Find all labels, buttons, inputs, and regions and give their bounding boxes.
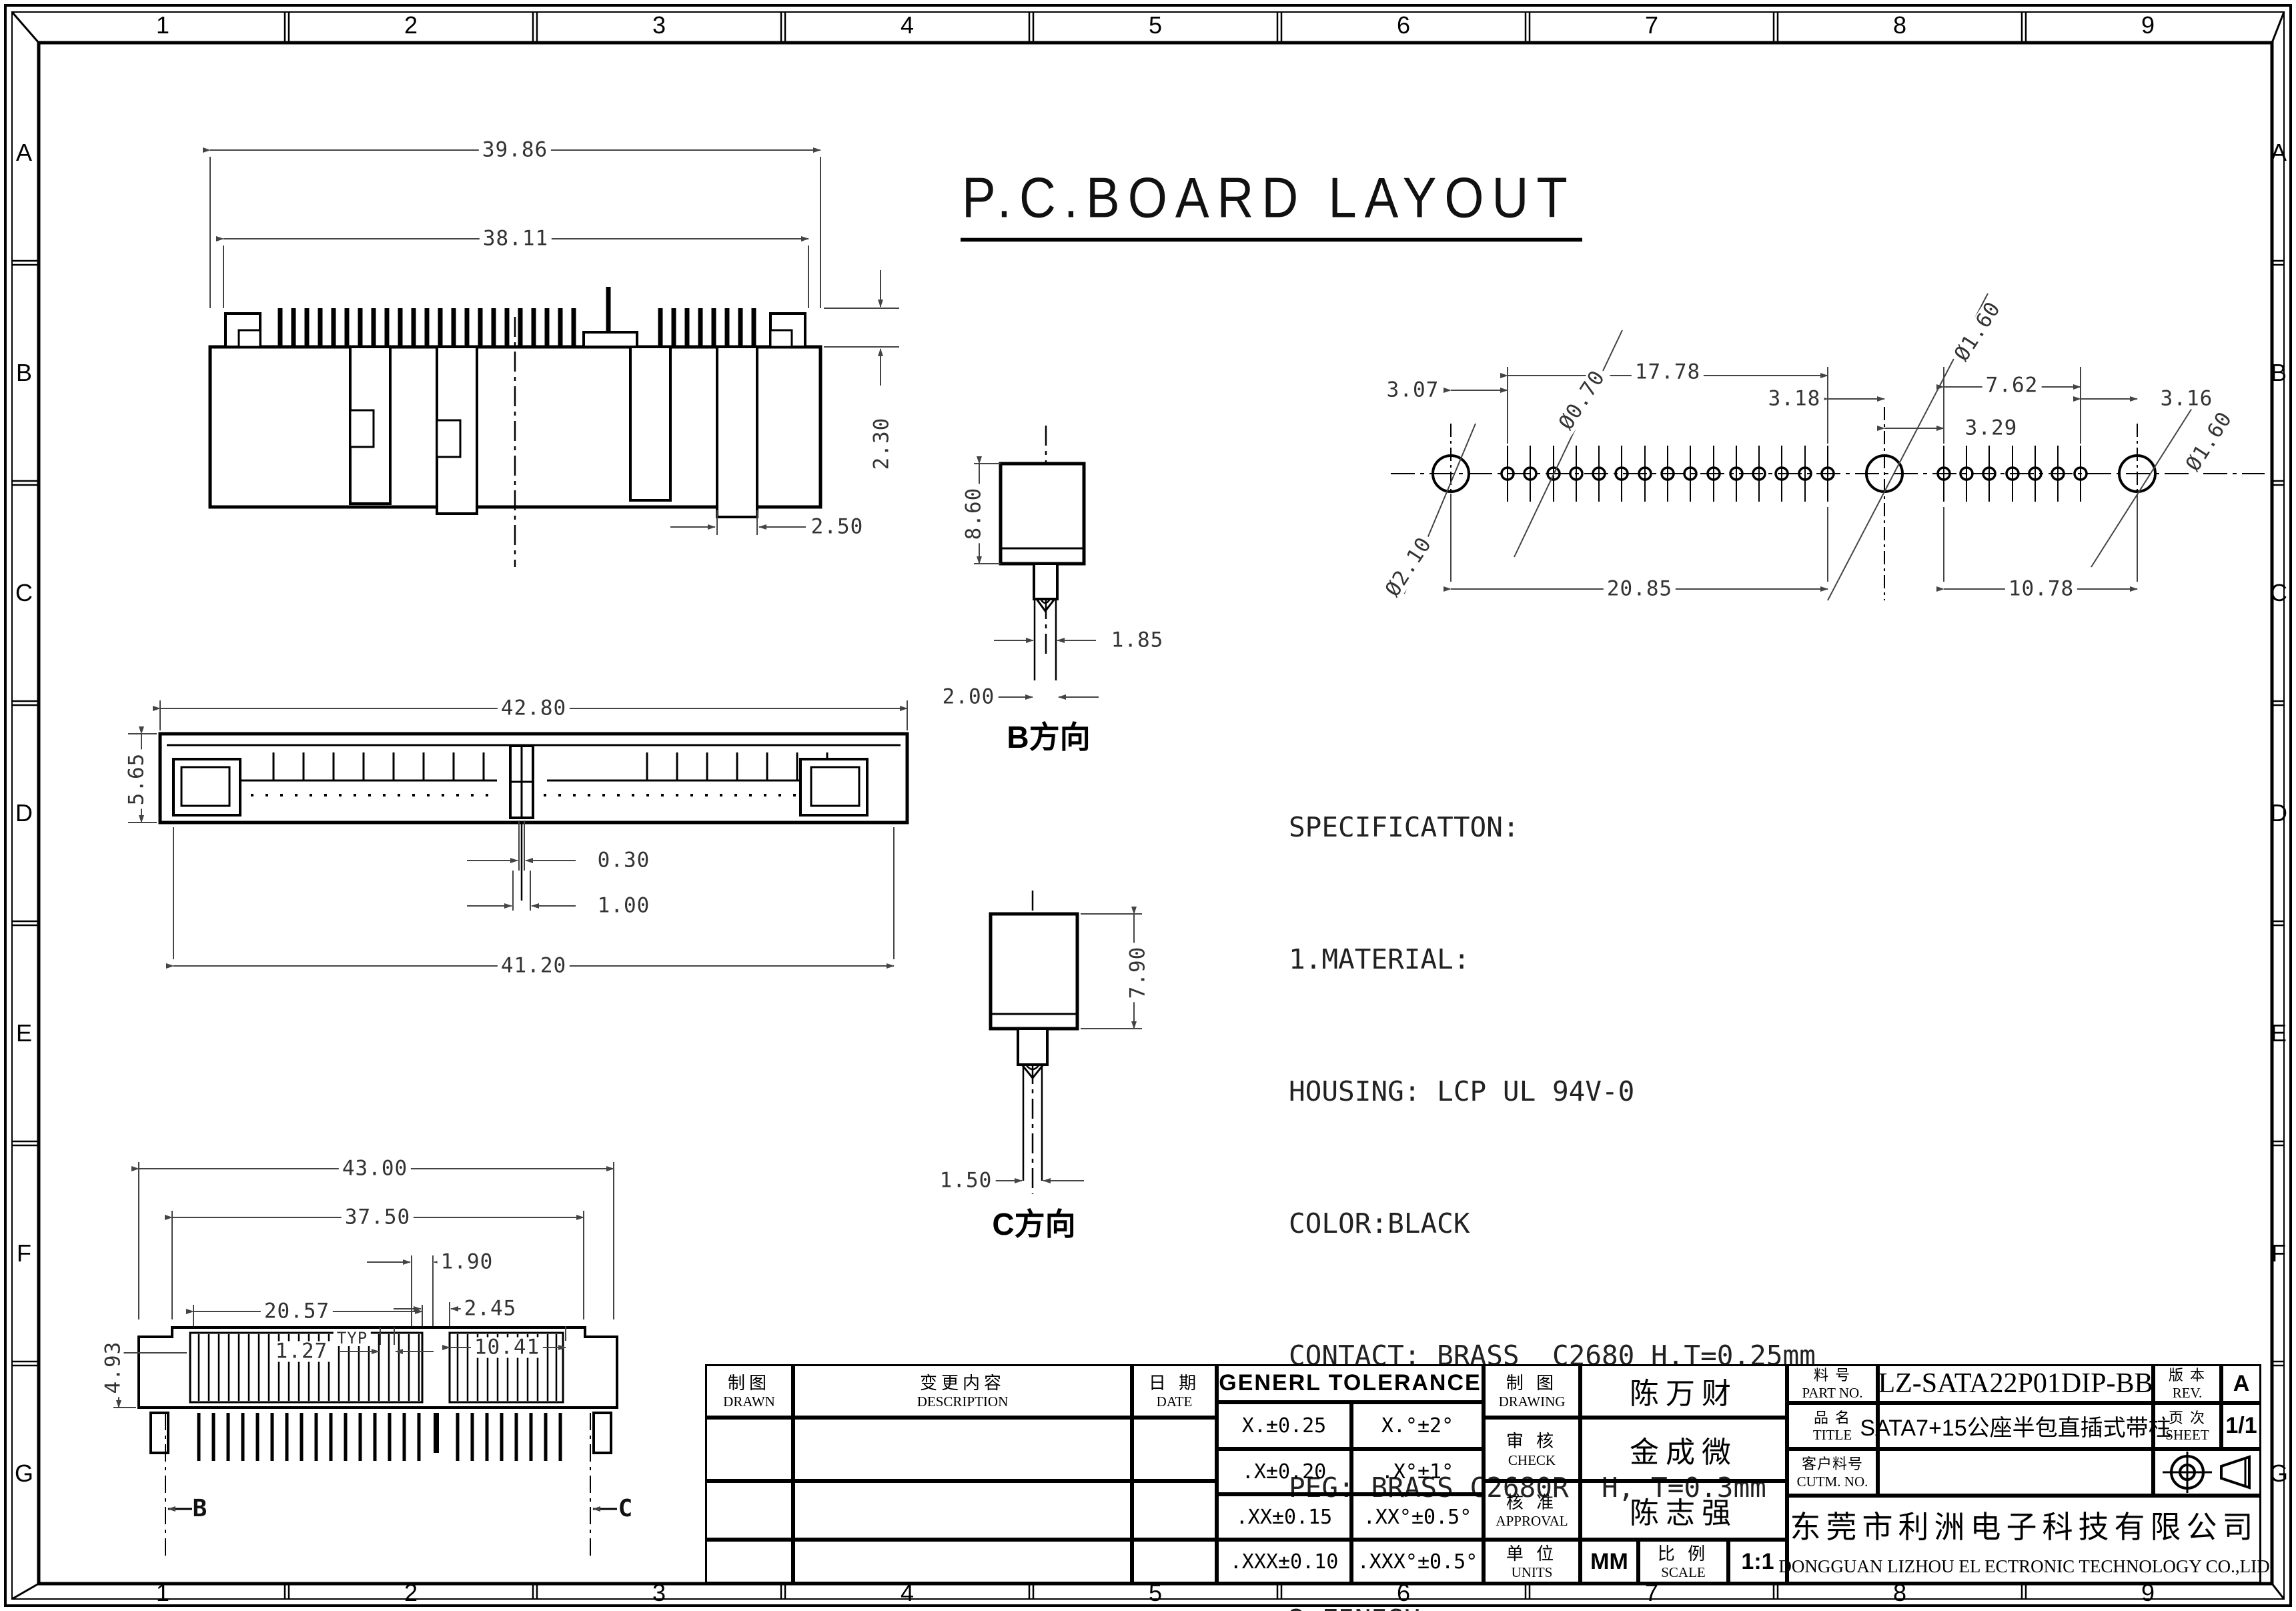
sheet-label-en: SHEET bbox=[2165, 1427, 2209, 1443]
titleblock-empty-cell bbox=[705, 1418, 793, 1481]
titleblock-check-name: 金成微 bbox=[1580, 1418, 1787, 1481]
titleblock-drawing-label: 制 图 DRAWING bbox=[1484, 1364, 1580, 1418]
zone-col-top-8: 8 bbox=[1893, 11, 1906, 39]
dim-viewb-peg-tip: 1.85 bbox=[1108, 630, 1167, 651]
titleblock-partno-value: LZ-SATA22P01DIP-BB bbox=[1878, 1364, 2153, 1403]
view-b-label: B方向 bbox=[1007, 713, 1090, 757]
tolerance-cell: X.°±2° bbox=[1351, 1402, 1484, 1449]
dim-top-pin-height: 2.30 bbox=[872, 414, 893, 474]
tolerance-cell: .XX±0.15 bbox=[1217, 1494, 1351, 1540]
tolerance-cell: .XX°±0.5° bbox=[1351, 1494, 1484, 1540]
b-direction-view-drawing bbox=[921, 420, 1294, 794]
titleblock-empty-cell bbox=[793, 1540, 1132, 1584]
drawing-label-en: DRAWING bbox=[1499, 1394, 1566, 1410]
top-view-drawing bbox=[200, 127, 901, 580]
sheet-value: 1/1 bbox=[2225, 1413, 2257, 1439]
titleblock-company-cell: 东莞市利洲电子科技有限公司 DONGGUAN LIZHOU EL ECTRONI… bbox=[1787, 1496, 2261, 1584]
rev-label-en: REV. bbox=[2173, 1385, 2203, 1401]
units-value: MM bbox=[1590, 1549, 1628, 1575]
titleblock-empty-cell bbox=[793, 1418, 1132, 1481]
dim-viewc-peg-width: 1.50 bbox=[937, 1171, 996, 1191]
tolerance-value: .X±0.20 bbox=[1242, 1460, 1326, 1484]
tolerance-cell: X.±0.25 bbox=[1217, 1402, 1351, 1449]
approval-label-en: APPROVAL bbox=[1496, 1513, 1568, 1529]
zone-col-top-6: 6 bbox=[1397, 11, 1410, 39]
approval-name: 陈志强 bbox=[1630, 1489, 1738, 1532]
zone-row-right-a: A bbox=[2271, 139, 2287, 167]
dim-viewb-peg-width: 2.00 bbox=[939, 687, 999, 708]
partno-label-en: PART NO. bbox=[1802, 1385, 1863, 1401]
titleblock-units-value: MM bbox=[1580, 1540, 1638, 1584]
titleblock-title-value: SATA7+15公座半包直插式带柱 bbox=[1878, 1403, 2153, 1449]
titleblock-units-label: 单 位 UNITS bbox=[1484, 1540, 1580, 1584]
dim-front-height: 5.65 bbox=[127, 750, 147, 809]
zone-row-right-d: D bbox=[2270, 799, 2287, 827]
check-label-en: CHECK bbox=[1508, 1452, 1556, 1468]
tolerance-header-label: GENERL TOLERANCE bbox=[1219, 1370, 1481, 1396]
dim-front-key-depth: 1.00 bbox=[594, 896, 654, 917]
customer-label-en: CUTM. NO. bbox=[1797, 1474, 1868, 1490]
spec-line: HOUSING: LCP UL 94V-0 bbox=[1289, 1069, 2112, 1113]
titleblock-empty-cell bbox=[1132, 1481, 1217, 1540]
view-c-label: C方向 bbox=[992, 1200, 1075, 1244]
tolerance-value: .XXX±0.10 bbox=[1230, 1550, 1339, 1574]
zone-row-left-g: G bbox=[15, 1460, 33, 1488]
titleblock-empty-cell bbox=[1132, 1540, 1217, 1584]
company-name-en: DONGGUAN LIZHOU EL ECTRONIC TECHNOLOGY C… bbox=[1778, 1556, 2269, 1577]
zone-row-left-c: C bbox=[15, 579, 33, 607]
part-number: LZ-SATA22P01DIP-BB bbox=[1878, 1368, 2153, 1400]
zone-col-top-3: 3 bbox=[652, 11, 666, 39]
spec-line: COLOR:BLACK bbox=[1289, 1201, 2112, 1245]
spec-line: 2.FINISH: bbox=[1289, 1598, 2112, 1611]
zone-row-left-a: A bbox=[16, 139, 32, 167]
bottom-view-drawing bbox=[87, 1147, 754, 1588]
check-label-cn: 审 核 bbox=[1506, 1430, 1558, 1452]
titleblock-date-header: 日 期 DATE bbox=[1132, 1364, 1217, 1418]
title-label-cn: 品 名 bbox=[1814, 1409, 1851, 1428]
titleblock-partno-label: 料 号 PART NO. bbox=[1787, 1364, 1878, 1403]
dim-pcb-3-18: 3.18 bbox=[1765, 389, 1824, 410]
date-label-en: DATE bbox=[1157, 1394, 1193, 1410]
description-label-cn: 变更内容 bbox=[920, 1372, 1005, 1394]
tolerance-cell: .X±0.20 bbox=[1217, 1449, 1351, 1494]
titleblock-tolerance-header: GENERL TOLERANCE bbox=[1217, 1364, 1484, 1402]
dim-bottom-20-57: 20.57 bbox=[261, 1301, 333, 1322]
customer-label-cn: 客户料号 bbox=[1802, 1455, 1863, 1474]
dim-bottom-width-outer: 43.00 bbox=[339, 1159, 411, 1179]
titleblock-sheet-value: 1/1 bbox=[2221, 1403, 2261, 1449]
spec-line: 1.MATERIAL: bbox=[1289, 937, 2112, 981]
dim-bottom-2-45: 2.45 bbox=[461, 1299, 520, 1319]
dim-viewb-body-height: 8.60 bbox=[964, 484, 985, 544]
titleblock-drawn-header: 制图 DRAWN bbox=[705, 1364, 793, 1418]
dim-top-inner: 38.11 bbox=[480, 229, 552, 249]
titleblock-scale-label: 比 例 SCALE bbox=[1638, 1540, 1728, 1584]
zone-col-top-2: 2 bbox=[404, 11, 418, 39]
scale-value: 1:1 bbox=[1741, 1549, 1774, 1575]
zone-col-top-1: 1 bbox=[156, 11, 169, 39]
dim-pcb-7-62: 7.62 bbox=[1982, 376, 2042, 396]
pcb-layout-drawing bbox=[1374, 253, 2281, 640]
zone-col-top-4: 4 bbox=[901, 11, 914, 39]
dim-bottom-height: 4.93 bbox=[103, 1338, 124, 1398]
tolerance-cell: .XXX±0.10 bbox=[1217, 1540, 1351, 1584]
dim-bottom-width-inner: 37.50 bbox=[342, 1207, 414, 1228]
dim-top-overall: 39.86 bbox=[479, 140, 551, 161]
titleblock-approval-name: 陈志强 bbox=[1580, 1481, 1787, 1540]
dim-pcb-10-78: 10.78 bbox=[2005, 579, 2077, 600]
units-label-cn: 单 位 bbox=[1506, 1543, 1558, 1565]
scale-label-cn: 比 例 bbox=[1658, 1543, 1709, 1565]
zone-row-right-g: G bbox=[2269, 1460, 2288, 1488]
titleblock-projection-cell bbox=[2153, 1449, 2261, 1496]
tolerance-value: .X°±1° bbox=[1381, 1460, 1454, 1484]
check-name: 金成微 bbox=[1630, 1428, 1738, 1471]
drawing-label-cn: 制 图 bbox=[1506, 1372, 1558, 1394]
drawing-name: 陈万财 bbox=[1630, 1370, 1738, 1412]
tolerance-value: .XX±0.15 bbox=[1236, 1506, 1333, 1529]
dim-pcb-3-07: 3.07 bbox=[1383, 380, 1443, 401]
dim-front-key-width: 0.30 bbox=[594, 851, 654, 871]
scale-label-en: SCALE bbox=[1661, 1564, 1706, 1580]
units-label-en: UNITS bbox=[1512, 1564, 1553, 1580]
dim-top-slot: 2.50 bbox=[808, 517, 867, 538]
drawn-label-en: DRAWN bbox=[723, 1394, 775, 1410]
titleblock-rev-label: 版 本 REV. bbox=[2153, 1364, 2221, 1403]
dim-viewc-body-height: 7.90 bbox=[1128, 943, 1149, 1003]
dim-bottom-1-90: 1.90 bbox=[438, 1252, 497, 1273]
dim-front-width-top: 42.80 bbox=[498, 698, 570, 719]
engineering-drawing-sheet: 1 2 3 4 5 6 7 8 9 1 2 3 4 5 6 7 8 9 A B … bbox=[0, 0, 2296, 1611]
zone-row-left-e: E bbox=[16, 1019, 32, 1047]
tolerance-value: X.°±2° bbox=[1381, 1414, 1454, 1438]
zone-row-right-f: F bbox=[2271, 1239, 2286, 1267]
tolerance-cell: .X°±1° bbox=[1351, 1449, 1484, 1494]
titleblock-approval-label: 核 准 APPROVAL bbox=[1484, 1481, 1580, 1540]
projection-symbol-icon bbox=[2157, 1452, 2257, 1493]
titleblock-empty-cell bbox=[793, 1481, 1132, 1540]
company-name-cn: 东莞市利洲电子科技有限公司 bbox=[1790, 1503, 2259, 1547]
titleblock-empty-cell bbox=[705, 1481, 793, 1540]
titleblock-sheet-label: 页 次 SHEET bbox=[2153, 1403, 2221, 1449]
zone-row-right-e: E bbox=[2271, 1019, 2287, 1047]
dim-pcb-20-85: 20.85 bbox=[1604, 579, 1676, 600]
zone-row-left-b: B bbox=[16, 359, 32, 387]
rev-label-cn: 版 本 bbox=[2169, 1366, 2206, 1385]
zone-row-left-f: F bbox=[17, 1239, 31, 1267]
sheet-label-cn: 页 次 bbox=[2169, 1409, 2206, 1428]
product-title: SATA7+15公座半包直插式带柱 bbox=[1860, 1410, 2171, 1442]
titleblock-empty-cell bbox=[1132, 1418, 1217, 1481]
dim-bottom-10-41: 10.41 bbox=[471, 1337, 543, 1358]
titleblock-customer-label: 客户料号 CUTM. NO. bbox=[1787, 1449, 1878, 1496]
dim-pcb-17-78: 17.78 bbox=[1632, 362, 1704, 383]
tolerance-value: X.±0.25 bbox=[1242, 1414, 1326, 1438]
approval-label-cn: 核 准 bbox=[1506, 1492, 1558, 1514]
titleblock-empty-cell bbox=[705, 1540, 793, 1584]
section-marker-c: C bbox=[615, 1497, 637, 1521]
zone-col-top-7: 7 bbox=[1645, 11, 1658, 39]
titleblock-drawing-name: 陈万财 bbox=[1580, 1364, 1787, 1418]
titleblock-description-header: 变更内容 DESCRIPTION bbox=[793, 1364, 1132, 1418]
spec-line: SPECIFICATTON: bbox=[1289, 805, 2112, 849]
section-marker-b: B bbox=[189, 1497, 211, 1521]
zone-col-top-9: 9 bbox=[2141, 11, 2155, 39]
partno-label-cn: 料 号 bbox=[1814, 1366, 1851, 1385]
dim-bottom-pitch: 1.27 bbox=[272, 1341, 332, 1362]
tolerance-value: .XXX°±0.5° bbox=[1357, 1550, 1478, 1574]
date-label-cn: 日 期 bbox=[1149, 1372, 1200, 1394]
dim-front-width-bottom: 41.20 bbox=[498, 956, 570, 977]
dim-bottom-typ: TYP bbox=[334, 1330, 371, 1346]
titleblock-customer-value bbox=[1878, 1449, 2153, 1496]
tolerance-cell: .XXX°±0.5° bbox=[1351, 1540, 1484, 1584]
page-title: P.C.BOARD LAYOUT bbox=[961, 165, 1582, 241]
dim-pcb-3-16: 3.16 bbox=[2157, 389, 2217, 410]
front-view-drawing bbox=[120, 680, 921, 1001]
zone-row-left-d: D bbox=[15, 799, 33, 827]
zone-col-top-5: 5 bbox=[1149, 11, 1162, 39]
dim-pcb-3-29: 3.29 bbox=[1962, 418, 2021, 439]
titleblock-rev-value: A bbox=[2221, 1364, 2261, 1403]
rev-value: A bbox=[2233, 1371, 2250, 1397]
tolerance-value: .XX°±0.5° bbox=[1363, 1506, 1472, 1529]
titleblock-check-label: 审 核 CHECK bbox=[1484, 1418, 1580, 1481]
title-label-en: TITLE bbox=[1813, 1427, 1852, 1443]
description-label-en: DESCRIPTION bbox=[917, 1394, 1009, 1410]
drawn-label-cn: 制图 bbox=[728, 1372, 770, 1394]
